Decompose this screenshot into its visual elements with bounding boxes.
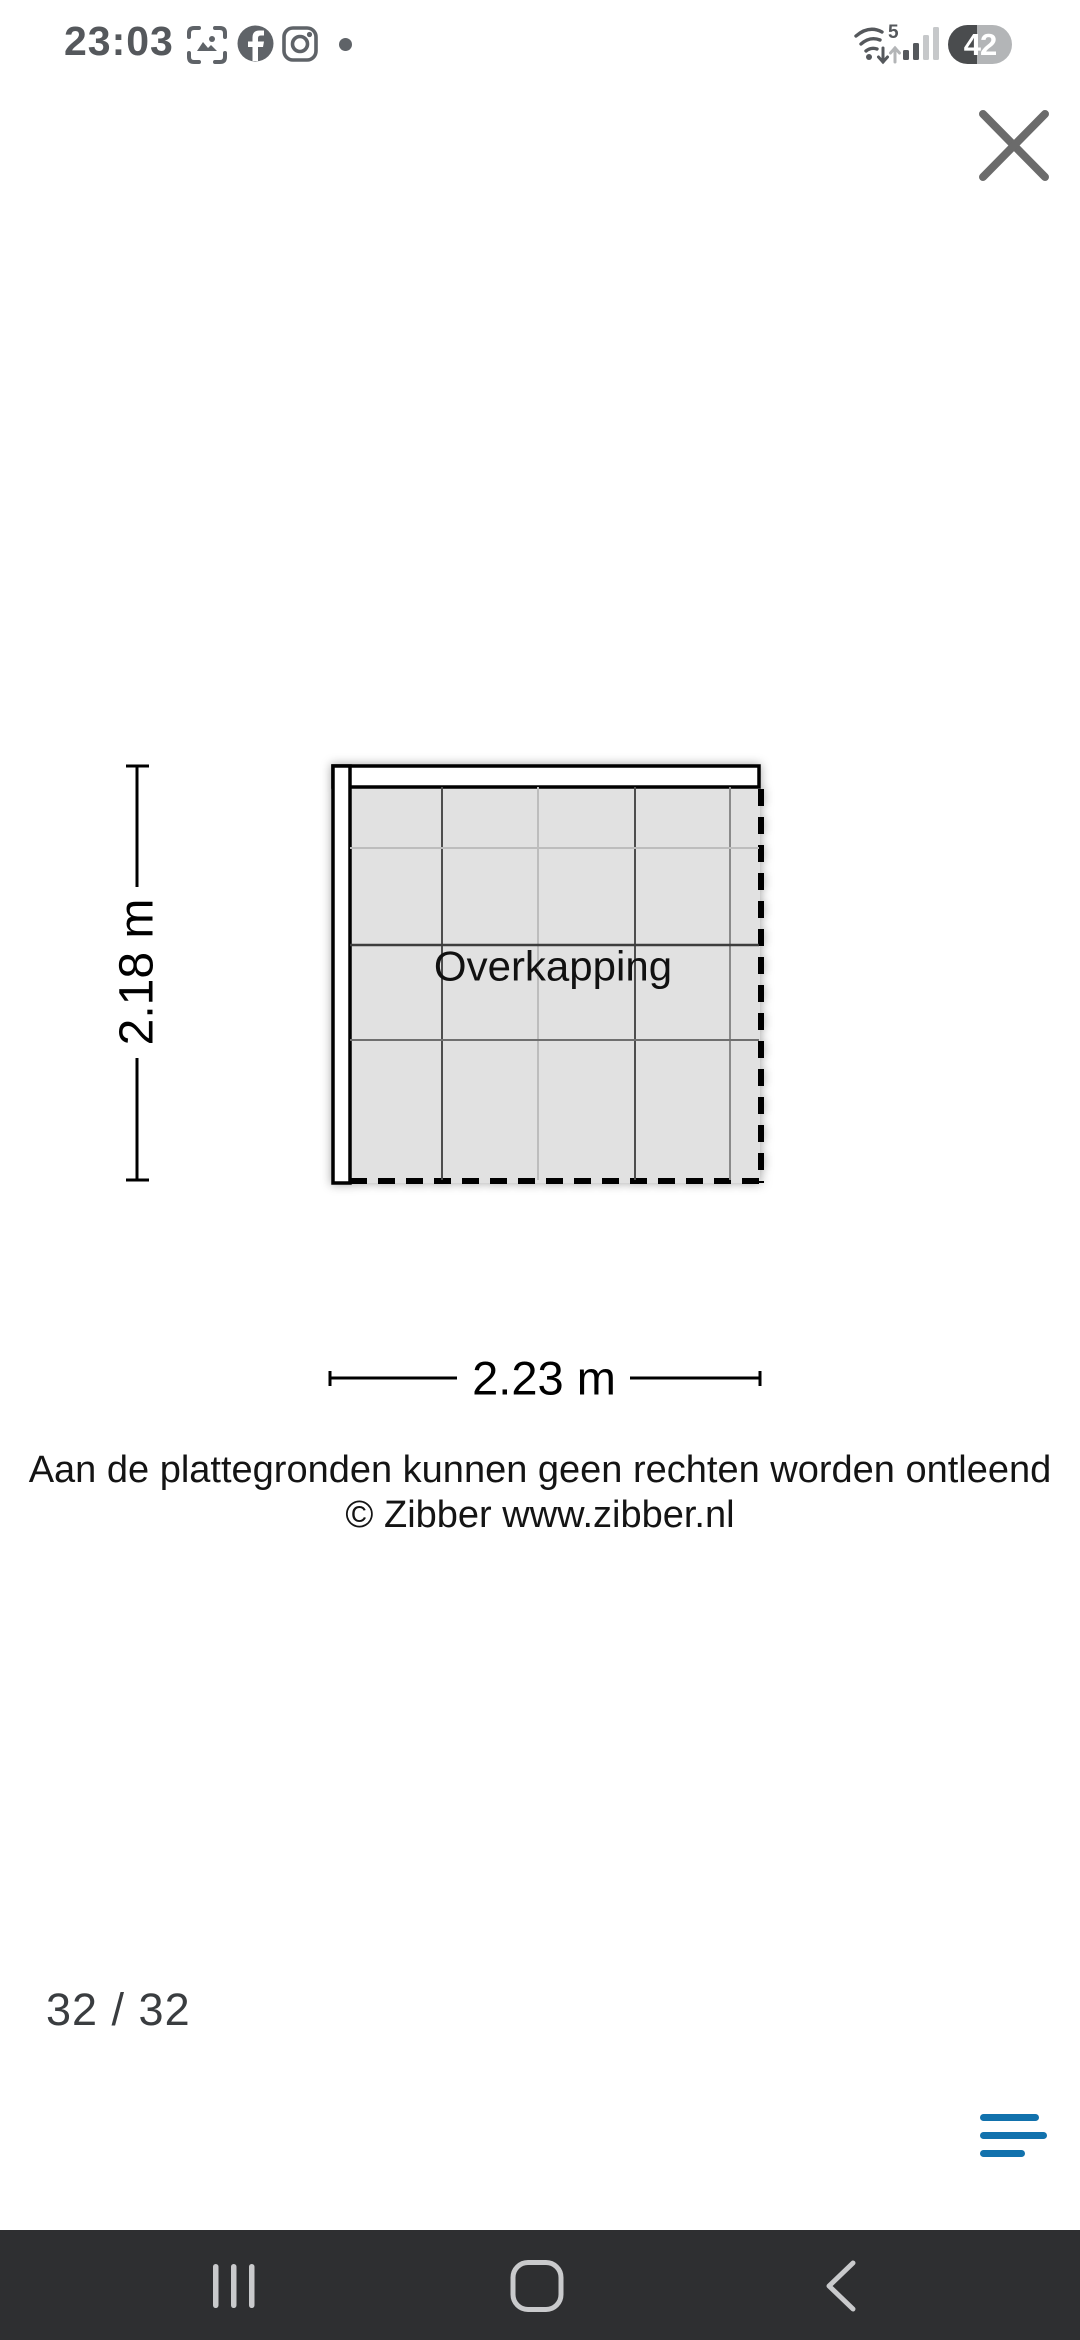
page-indicator: 32 / 32 xyxy=(46,1984,191,2036)
home-icon xyxy=(508,2259,566,2313)
recents-button[interactable] xyxy=(174,2244,294,2328)
room-label: Overkapping xyxy=(434,943,672,990)
navigation-bar xyxy=(0,2230,1080,2340)
recents-icon xyxy=(204,2260,264,2312)
phone-screen: 23:03 5 xyxy=(0,0,1080,2340)
width-dimension-label: 2.23 m xyxy=(472,1352,616,1405)
facebook-icon xyxy=(237,25,274,62)
signal-strength-icon xyxy=(901,24,941,64)
disclaimer-line2: © Zibber www.zibber.nl xyxy=(0,1493,1080,1538)
screen-capture-icon xyxy=(186,25,228,65)
back-icon xyxy=(815,2256,865,2316)
floorplan-canvas: Overkapping 2.18 m 2.23 m xyxy=(60,740,800,1420)
battery-indicator: 42 xyxy=(948,25,1012,64)
close-icon xyxy=(983,114,1045,177)
disclaimer: Aan de plattegronden kunnen geen rechten… xyxy=(0,1448,1080,1538)
back-button[interactable] xyxy=(780,2244,900,2328)
status-time: 23:03 xyxy=(64,18,174,65)
disclaimer-line1: Aan de plattegronden kunnen geen rechten… xyxy=(0,1448,1080,1493)
close-button[interactable] xyxy=(972,104,1054,186)
height-dimension-label: 2.18 m xyxy=(111,899,164,1046)
wifi-icon: 5 xyxy=(852,22,904,68)
battery-percent-label: 42 xyxy=(964,27,996,63)
notification-dot-icon xyxy=(339,38,352,51)
home-button[interactable] xyxy=(477,2244,597,2328)
wifi-generation-label: 5 xyxy=(888,22,899,43)
menu-button[interactable] xyxy=(978,2106,1058,2170)
instagram-icon xyxy=(281,25,319,63)
